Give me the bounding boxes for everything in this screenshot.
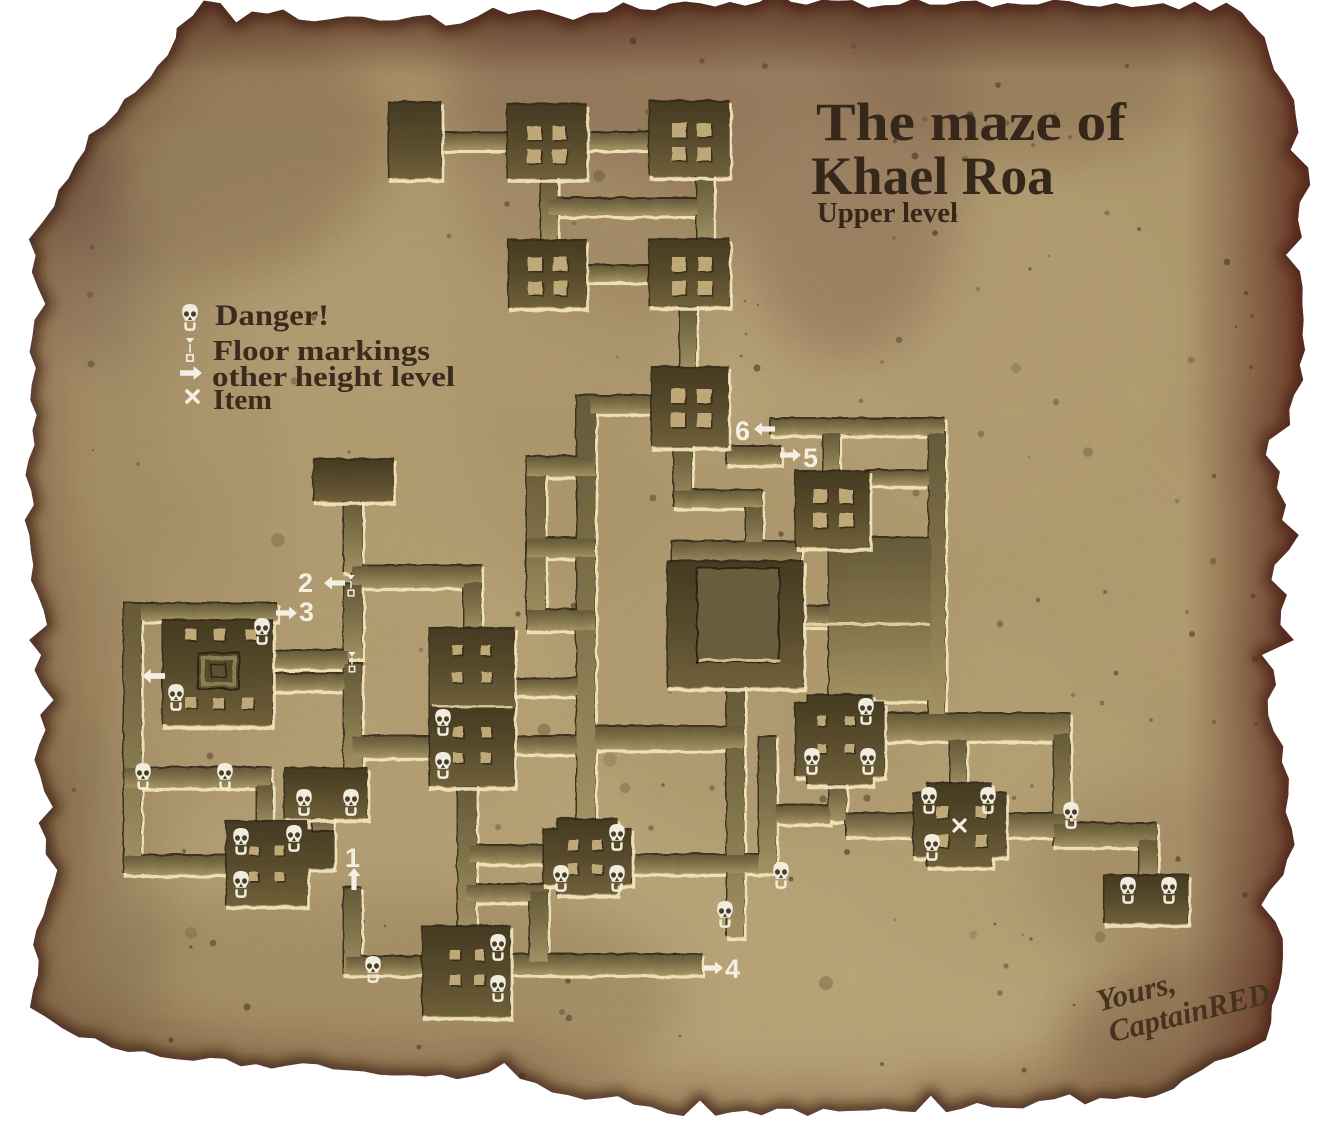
svg-text:6: 6 bbox=[735, 416, 750, 446]
svg-text:Khael Roa: Khael Roa bbox=[811, 146, 1054, 206]
svg-text:3: 3 bbox=[299, 597, 314, 627]
svg-text:5: 5 bbox=[803, 443, 818, 473]
svg-text:1: 1 bbox=[345, 843, 360, 873]
svg-text:Item: Item bbox=[213, 384, 272, 416]
svg-text:4: 4 bbox=[725, 954, 740, 984]
svg-text:2: 2 bbox=[298, 568, 313, 598]
svg-text:Upper level: Upper level bbox=[817, 198, 958, 229]
svg-text:Danger!: Danger! bbox=[215, 299, 329, 332]
svg-text:The maze of: The maze of bbox=[816, 92, 1127, 152]
